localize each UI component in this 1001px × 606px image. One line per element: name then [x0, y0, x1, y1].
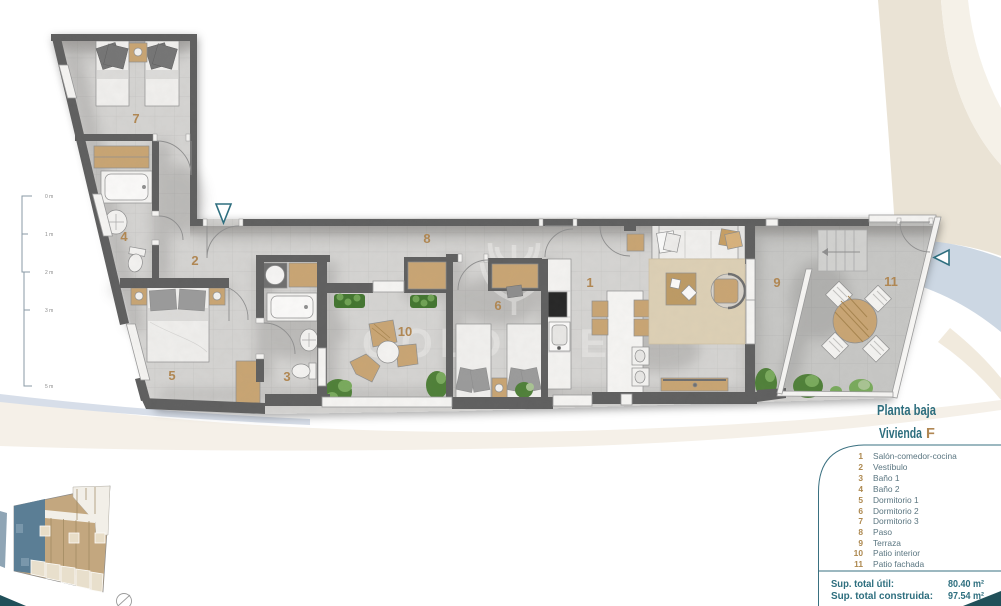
svg-text:Patio interior: Patio interior: [873, 548, 920, 558]
svg-text:Sup. total construida:: Sup. total construida:: [831, 590, 933, 602]
svg-text:Dormitorio 2: Dormitorio 2: [873, 506, 919, 516]
svg-text:11: 11: [854, 559, 863, 569]
svg-text:8: 8: [423, 231, 430, 246]
svg-text:Patio fachada: Patio fachada: [873, 559, 925, 569]
svg-text:5: 5: [858, 495, 863, 505]
svg-text:Vivienda: Vivienda: [879, 426, 923, 442]
svg-text:2: 2: [191, 253, 198, 268]
svg-text:6: 6: [494, 298, 501, 313]
svg-text:4: 4: [120, 229, 128, 244]
svg-text:10: 10: [398, 324, 412, 339]
svg-text:Baño 1: Baño 1: [873, 473, 900, 483]
svg-text:Baño 2: Baño 2: [873, 484, 900, 494]
svg-text:Vestíbulo: Vestíbulo: [873, 462, 908, 472]
svg-text:Dormitorio 3: Dormitorio 3: [873, 516, 919, 526]
svg-text:Salón-comedor-cocina: Salón-comedor-cocina: [873, 451, 957, 461]
svg-text:8: 8: [858, 527, 863, 537]
svg-text:80.40 m²: 80.40 m²: [948, 578, 984, 590]
svg-text:Dormitorio 1: Dormitorio 1: [873, 495, 919, 505]
svg-text:7: 7: [132, 111, 139, 126]
svg-text:7: 7: [858, 516, 863, 526]
svg-text:3: 3: [283, 369, 290, 384]
svg-text:Paso: Paso: [873, 527, 892, 537]
svg-text:4: 4: [858, 484, 863, 494]
svg-text:0 m: 0 m: [45, 194, 53, 200]
svg-text:2 m: 2 m: [45, 270, 53, 276]
svg-text:2: 2: [858, 462, 863, 472]
svg-text:5: 5: [168, 368, 175, 383]
svg-text:3 m: 3 m: [45, 308, 53, 314]
svg-text:3: 3: [858, 473, 863, 483]
svg-text:5 m: 5 m: [45, 384, 53, 390]
svg-text:F: F: [926, 426, 935, 442]
svg-text:10: 10: [854, 548, 864, 558]
svg-text:1: 1: [586, 275, 593, 290]
svg-text:6: 6: [858, 506, 863, 516]
svg-text:1: 1: [858, 451, 863, 461]
svg-text:9: 9: [773, 275, 780, 290]
svg-text:9: 9: [858, 538, 863, 548]
svg-text:97.54 m²: 97.54 m²: [948, 590, 984, 602]
svg-text:11: 11: [884, 274, 898, 289]
svg-text:Planta baja: Planta baja: [877, 403, 937, 419]
svg-text:1 m: 1 m: [45, 232, 53, 238]
svg-text:Terraza: Terraza: [873, 538, 901, 548]
svg-text:Sup. total útil:: Sup. total útil:: [831, 578, 894, 590]
